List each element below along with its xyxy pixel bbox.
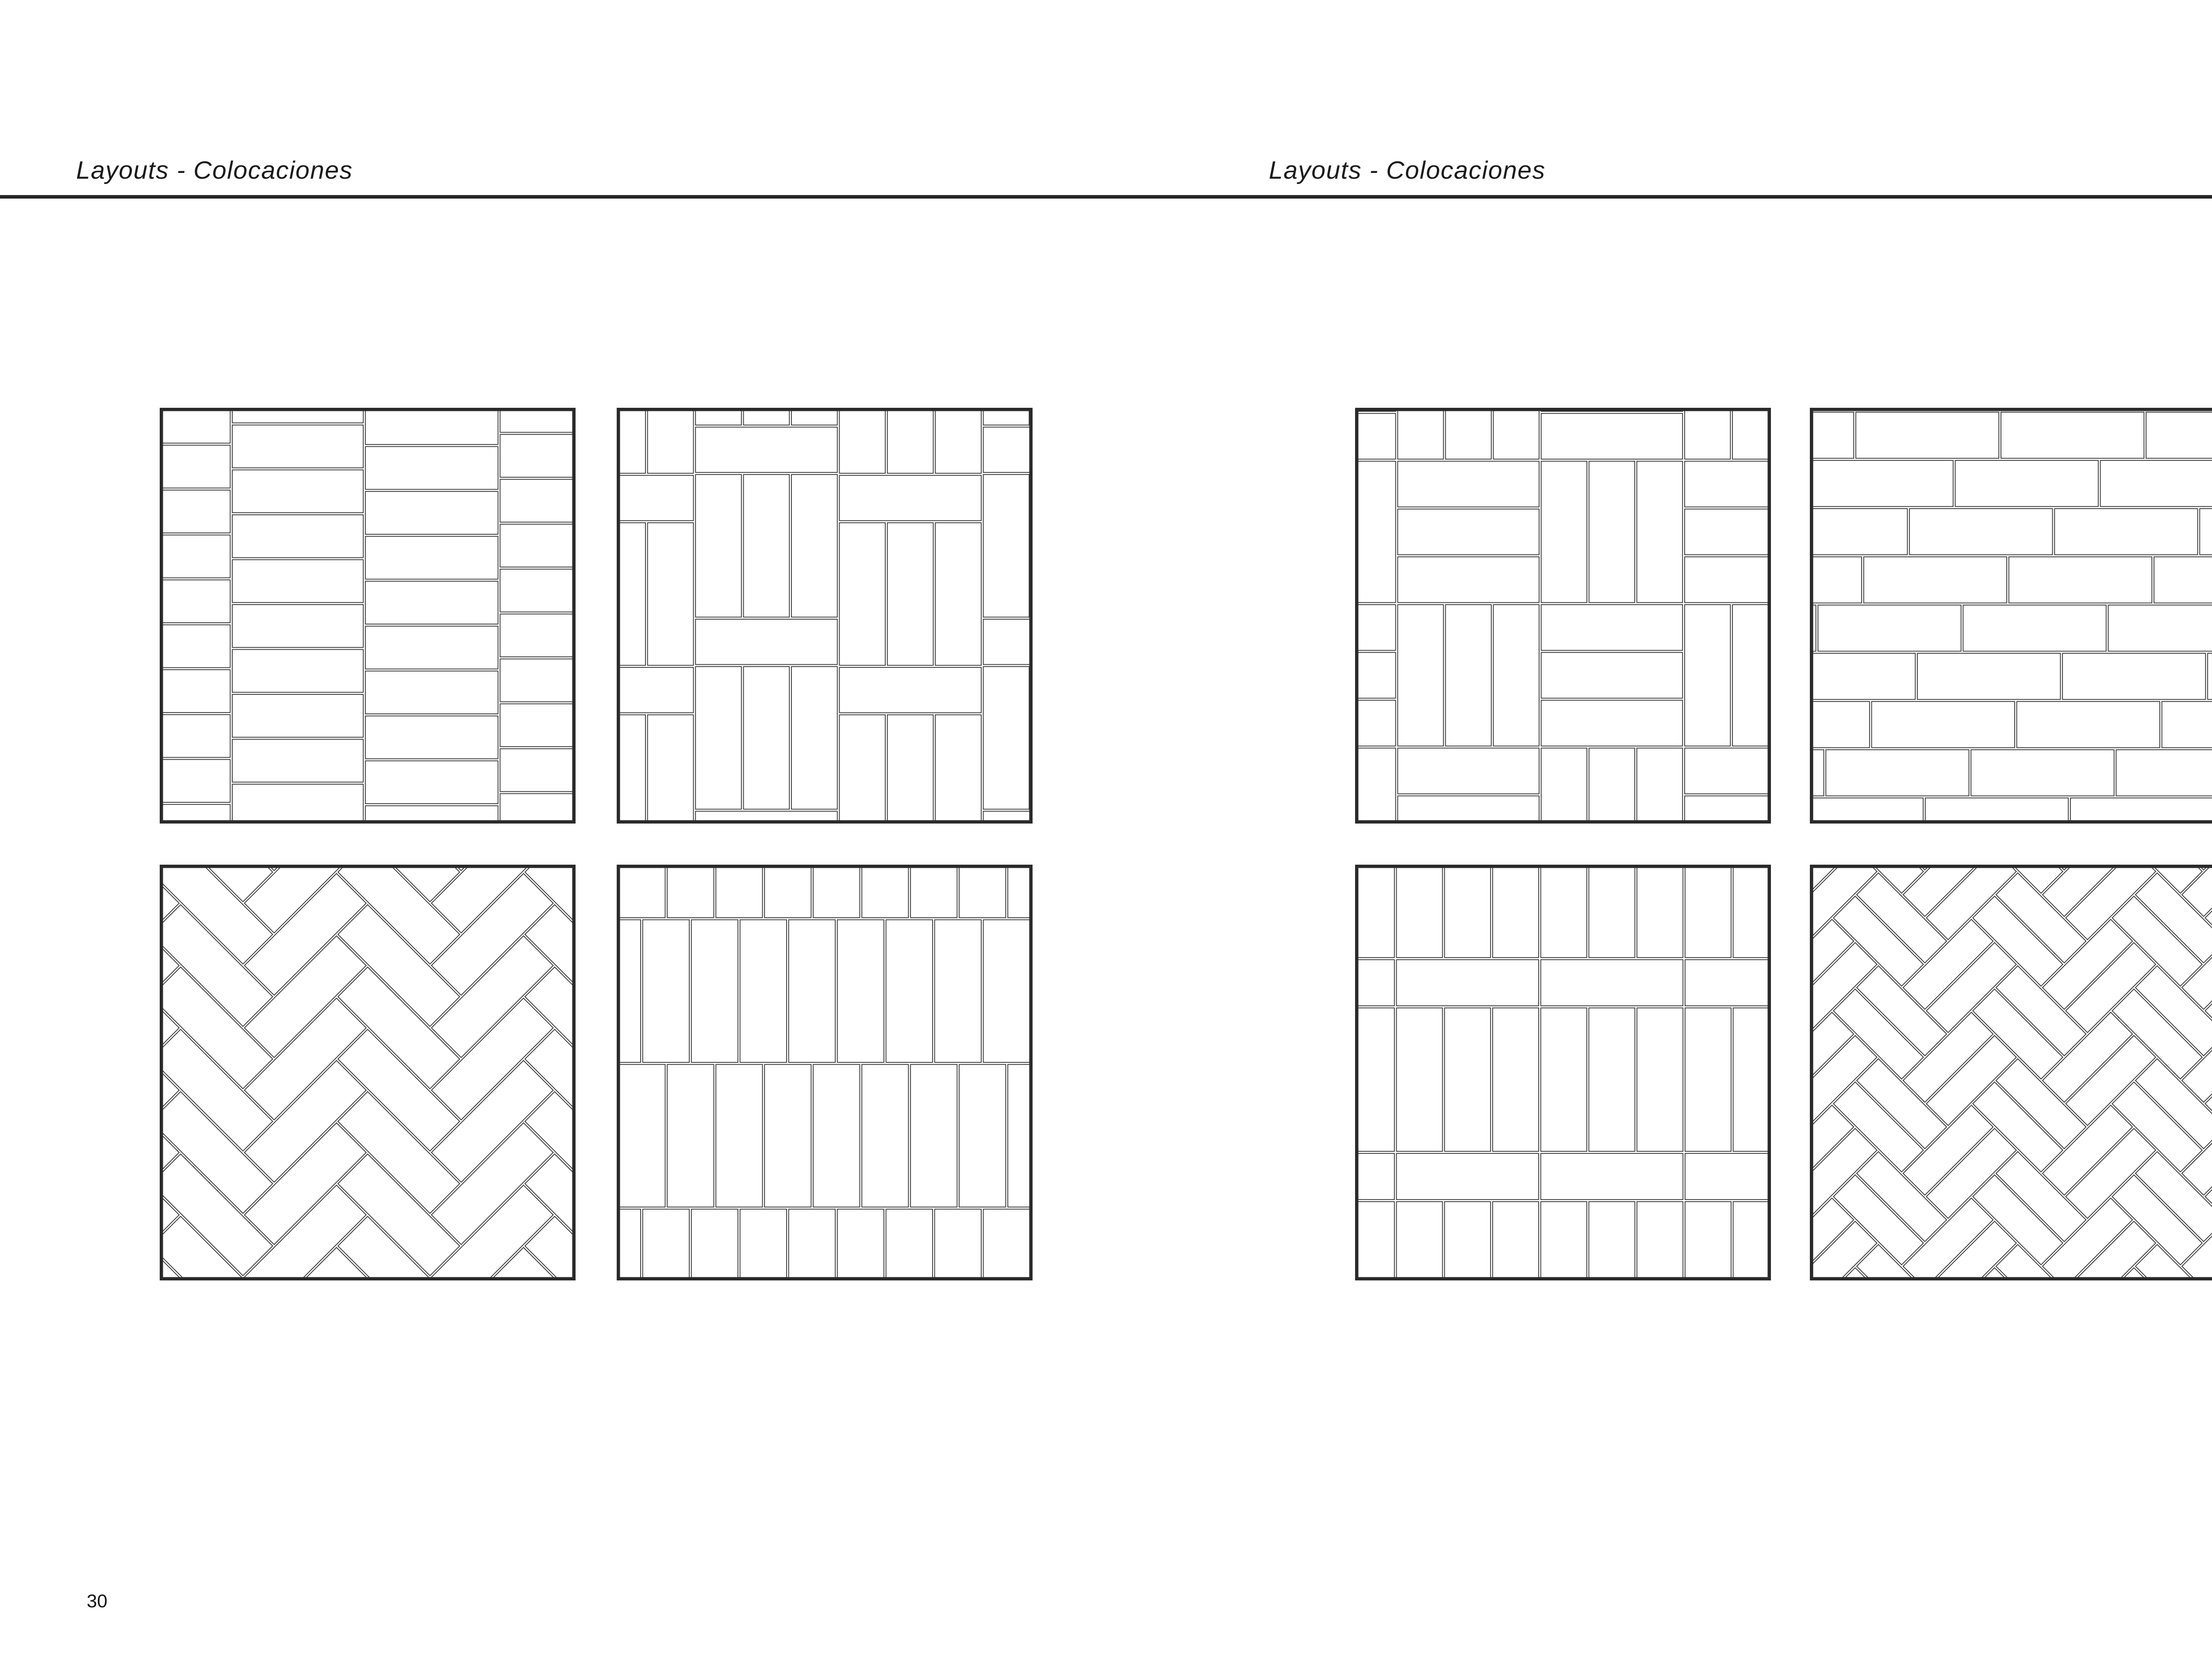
tile-pattern-double-herringbone: [1810, 865, 2212, 1280]
page-number-left: 30: [87, 1590, 108, 1612]
tile-pattern-running-bond: [1810, 408, 2212, 824]
tile-pattern-soldier-rows: [617, 865, 1033, 1280]
header-divider-rule: [0, 195, 2212, 199]
page-header-right: Layouts - Colocaciones: [1269, 156, 1546, 185]
tile-pattern-herringbone: [160, 865, 576, 1280]
page-header-left: Layouts - Colocaciones: [76, 156, 353, 185]
catalog-spread: Layouts - Colocaciones Layouts - Colocac…: [0, 0, 2212, 1663]
tile-pattern-plank-columns: [160, 408, 576, 824]
tile-pattern-soldier-stretcher-aligned: [1355, 865, 1771, 1280]
tile-pattern-basketweave: [1355, 408, 1771, 824]
tile-pattern-soldier-stretcher-staggered: [617, 408, 1033, 824]
